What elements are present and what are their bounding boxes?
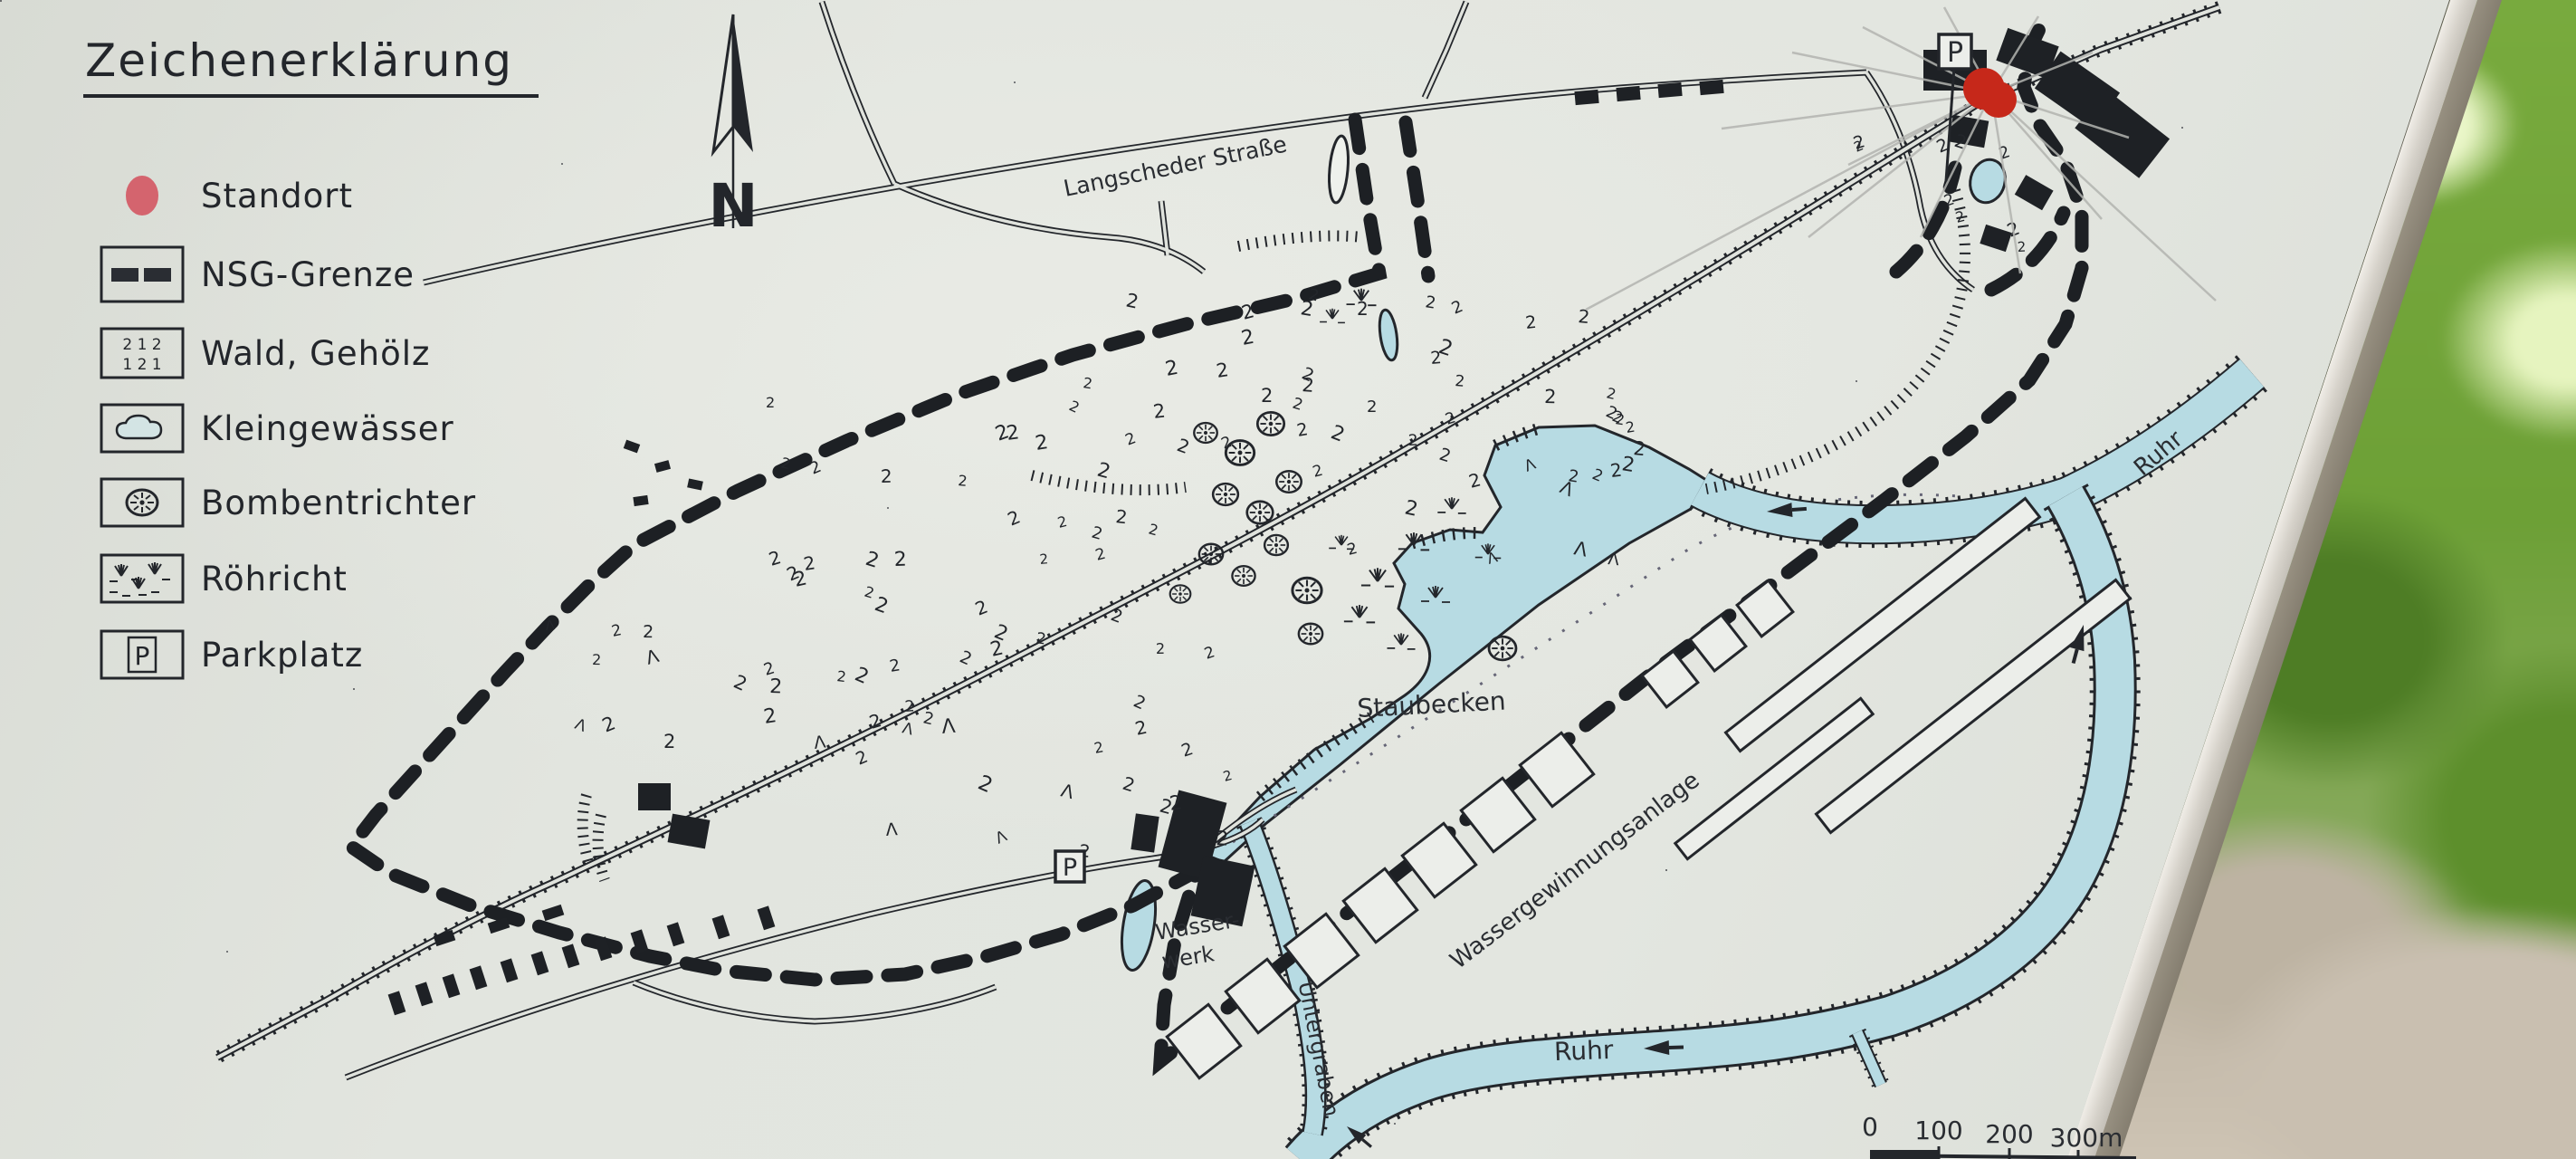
wasserwerk-label-line1: Wasser-	[1154, 907, 1242, 945]
tree-glyph: 2	[1291, 395, 1305, 415]
ruhr-lower-label: Ruhr	[1554, 1035, 1615, 1067]
tree-glyph: 2	[766, 394, 775, 411]
svg-text:P: P	[1063, 854, 1077, 882]
tree-glyph: 2	[1178, 739, 1196, 761]
tree-glyph: 2	[762, 704, 778, 729]
reed-marker	[1387, 633, 1415, 648]
tree-glyph: 2	[730, 671, 750, 695]
tree-glyph: 2	[592, 651, 602, 668]
bomb-crater-marker	[1194, 423, 1216, 443]
reservoir-label: Staubecken	[1357, 685, 1507, 723]
tree-glyph: 2	[1466, 468, 1484, 492]
tree-glyph: 2	[807, 457, 825, 479]
bomb-crater-marker	[1293, 578, 1321, 603]
tree-glyph: 2	[643, 622, 654, 642]
tree-glyph: 2	[836, 667, 847, 685]
tree-glyph: 2	[852, 664, 873, 689]
reed-marker	[1320, 309, 1345, 323]
tree-glyph: 2	[1082, 374, 1093, 392]
tree-glyph: 2	[1131, 691, 1149, 714]
tree-glyph: 2	[1357, 298, 1369, 320]
tree-glyph: 2	[1121, 772, 1138, 797]
bomb-crater-marker	[1299, 624, 1322, 645]
tree-glyph: 2	[1123, 429, 1139, 450]
tree-glyph: 2	[893, 549, 907, 571]
tree-glyph: 2	[1403, 496, 1420, 521]
tree-glyph: 2	[663, 731, 675, 752]
tree-glyph: 2	[1953, 207, 1966, 226]
reed-marker	[1437, 497, 1465, 513]
tree-glyph: 2	[1261, 385, 1273, 407]
tree-glyph: 2	[975, 771, 997, 799]
tree-glyph: 2	[1605, 384, 1617, 403]
tree-glyph: 2	[863, 548, 882, 573]
scale-bar: 0 100 200 300m	[1862, 1112, 2136, 1159]
tree-glyph: 2	[1407, 432, 1418, 450]
tree-glyph: 2	[1625, 418, 1636, 436]
tree-glyph: 2	[1055, 512, 1068, 532]
tree-glyph: 2	[2017, 239, 2026, 255]
parking-marker-wasserwerk: P	[1055, 851, 1084, 882]
scale-tick-0: 0	[1862, 1112, 1878, 1142]
tree-glyph: 2	[888, 656, 902, 676]
bomb-crater-marker	[1257, 412, 1283, 435]
tree-glyph: 2	[863, 583, 876, 602]
photo-of-map-sign: Zeichenerklärung Standort NSG-Grenze 2 1…	[0, 0, 2576, 1159]
tree-glyph: Λ	[644, 645, 662, 669]
tree-glyph: 2	[1005, 506, 1024, 531]
tree-glyph: 2	[1094, 459, 1112, 484]
tree-glyph: 2	[1216, 828, 1229, 851]
tree-glyph: 2	[1221, 767, 1234, 785]
tree-glyph: 2	[1455, 372, 1466, 391]
tree-glyph: 2	[958, 472, 968, 490]
tree-glyph: 2	[1093, 545, 1108, 565]
tree-glyph: 2	[802, 551, 816, 575]
tree-glyph: 2	[610, 621, 624, 641]
tree-glyph: 2	[1424, 292, 1437, 313]
reed-marker	[1361, 568, 1394, 586]
tree-glyph: 2	[991, 620, 1011, 646]
tree-glyph: 2	[1524, 312, 1537, 333]
tree-glyph: Λ	[813, 733, 827, 753]
bomb-crater-marker	[1489, 637, 1516, 660]
tree-glyph: 2	[921, 708, 936, 729]
tree-glyph: Λ	[1059, 780, 1076, 804]
tree-glyph: 2	[881, 465, 892, 487]
svg-text:P: P	[1947, 37, 1963, 69]
tree-glyph: 2	[1147, 521, 1160, 540]
tree-glyph: Λ	[901, 719, 915, 739]
tree-glyph: 2	[1156, 640, 1166, 657]
tree-glyph: 2	[1328, 421, 1348, 446]
tree-glyph: 2	[599, 712, 618, 736]
tree-glyph: 2	[1215, 359, 1230, 382]
tree-glyph: 2	[1133, 716, 1150, 740]
tree-glyph: 2	[872, 593, 891, 618]
small-ponds	[583, 135, 2010, 972]
scale-tick-200: 200	[1985, 1119, 2033, 1149]
bomb-crater-marker	[1199, 544, 1223, 565]
north-arrow: N	[708, 14, 758, 241]
scale-tick-300: 300m	[2050, 1123, 2123, 1153]
reed-marker	[1344, 605, 1375, 622]
tree-glyph: 2	[1114, 505, 1128, 528]
bomb-crater-marker	[1170, 585, 1191, 602]
tree-glyph: 2	[957, 647, 975, 669]
bomb-crater-marker	[1232, 566, 1255, 586]
tree-glyph: 2	[1124, 289, 1140, 312]
tree-glyph: 2	[1066, 397, 1082, 417]
tree-glyph: 2	[1092, 738, 1105, 757]
tree-glyph: Λ	[1607, 550, 1620, 570]
tree-glyph: Λ	[572, 715, 588, 736]
tree-glyph: 2	[904, 697, 915, 716]
tree-glyph: 2	[1034, 431, 1050, 455]
tree-glyph: 2	[1437, 445, 1454, 467]
tree-glyph: 2	[1163, 357, 1180, 381]
tree-glyph: 2	[1295, 419, 1310, 441]
tree-glyph: 2	[1302, 374, 1315, 397]
tree-glyph: 2	[1311, 462, 1325, 482]
scale-tick-100: 100	[1914, 1116, 1962, 1145]
bomb-crater-marker	[1247, 502, 1274, 523]
tree-glyph: Λ	[885, 819, 899, 840]
untergraben-label: Untergraben	[1293, 979, 1344, 1118]
tree-glyph: 2	[853, 747, 871, 770]
tree-glyph: 2	[1039, 551, 1049, 568]
tree-glyph: 2	[1152, 400, 1167, 423]
bomb-crater-marker	[1226, 441, 1254, 465]
tree-glyph: 2	[972, 596, 991, 620]
tree-glyph: 2	[1367, 398, 1377, 417]
tree-glyph: 2	[1090, 523, 1105, 544]
north-arrow-letter: N	[708, 171, 758, 241]
tree-glyph: 2	[766, 546, 783, 570]
tree-glyph: Λ	[940, 715, 956, 739]
tree-glyph: 2	[1544, 386, 1557, 407]
tree-glyph: 2	[769, 675, 783, 698]
tree-glyph: Λ	[993, 827, 1010, 848]
bomb-crater-marker	[1264, 535, 1288, 555]
bomb-crater-marker	[1276, 471, 1301, 493]
tree-glyph: 2	[1436, 335, 1455, 361]
tree-glyph: 2	[1449, 297, 1466, 319]
tree-glyph: 2	[1239, 326, 1256, 350]
tree-glyph: 2	[1299, 297, 1315, 321]
tree-glyph: 2	[1202, 643, 1217, 663]
bomb-crater-marker	[1213, 484, 1238, 505]
tree-glyph: 2	[1174, 434, 1192, 458]
reserve-map: 2222222222222222222222222222222222222222…	[0, 0, 2576, 1159]
